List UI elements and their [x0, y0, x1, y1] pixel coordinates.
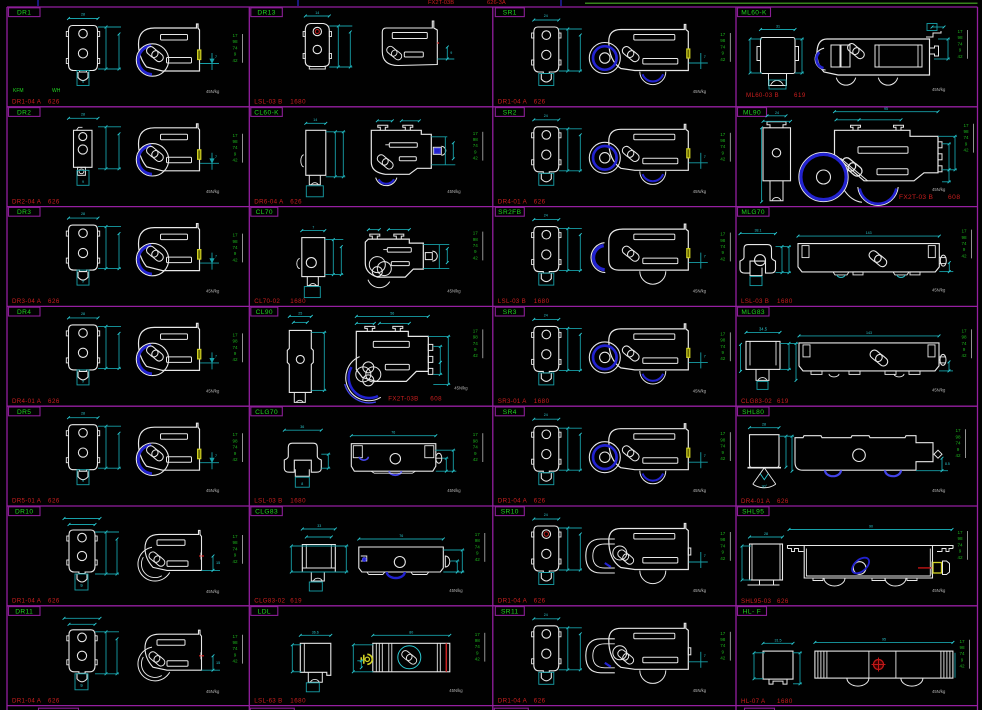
svg-text:28: 28: [81, 112, 85, 116]
svg-text:17: 17: [720, 531, 726, 536]
svg-text:7: 7: [215, 155, 217, 159]
svg-text:45N/kg: 45N/kg: [447, 289, 461, 294]
svg-text:DR1-04 A: DR1-04 A: [12, 697, 42, 704]
svg-text:36: 36: [300, 425, 304, 429]
svg-text:98: 98: [232, 438, 238, 443]
svg-text:SR10: SR10: [501, 509, 519, 516]
svg-text:98: 98: [959, 645, 965, 650]
svg-text:DR1-04 A: DR1-04 A: [498, 697, 528, 704]
svg-text:9: 9: [82, 479, 84, 483]
svg-text:28: 28: [81, 312, 85, 316]
svg-text:98: 98: [720, 637, 726, 642]
svg-text:17: 17: [475, 532, 481, 537]
svg-text:7: 7: [215, 454, 217, 458]
svg-text:98: 98: [963, 129, 969, 134]
svg-text:24: 24: [544, 214, 548, 218]
svg-text:17: 17: [473, 231, 479, 236]
svg-text:42: 42: [955, 453, 961, 458]
svg-text:25: 25: [298, 311, 302, 315]
svg-text:98: 98: [720, 338, 726, 343]
svg-text:17: 17: [720, 631, 726, 636]
svg-text:76: 76: [391, 431, 395, 435]
svg-text:74: 74: [955, 441, 961, 446]
svg-text:1680: 1680: [290, 697, 306, 704]
svg-text:74: 74: [961, 341, 967, 346]
svg-text:9: 9: [234, 451, 237, 456]
svg-text:626: 626: [777, 498, 789, 505]
svg-text:42: 42: [961, 353, 967, 358]
svg-text:74: 74: [475, 644, 481, 649]
svg-text:7: 7: [704, 554, 706, 558]
svg-text:619: 619: [777, 398, 789, 405]
svg-text:56: 56: [390, 311, 394, 315]
svg-text:CL90: CL90: [256, 309, 273, 316]
svg-text:17: 17: [720, 32, 726, 37]
svg-text:FX2T-03 B: FX2T-03 B: [899, 194, 934, 201]
svg-text:42: 42: [961, 253, 967, 258]
svg-text:98: 98: [957, 35, 963, 40]
svg-text:45N/kg: 45N/kg: [693, 588, 707, 593]
svg-text:42: 42: [232, 357, 238, 362]
svg-text:7: 7: [215, 55, 217, 59]
svg-text:24: 24: [544, 114, 548, 118]
svg-text:42: 42: [232, 457, 238, 462]
svg-text:ML60-K: ML60-K: [741, 10, 767, 17]
svg-text:17: 17: [232, 133, 238, 138]
svg-text:17: 17: [963, 123, 969, 128]
svg-text:74: 74: [473, 143, 479, 148]
svg-text:45N/kg: 45N/kg: [206, 388, 220, 393]
svg-text:45N/kg: 45N/kg: [693, 189, 707, 194]
svg-text:45N/kg: 45N/kg: [693, 688, 707, 693]
svg-text:42: 42: [473, 457, 479, 462]
svg-text:42: 42: [720, 556, 726, 561]
svg-text:42: 42: [475, 657, 481, 662]
svg-text:619: 619: [290, 598, 302, 605]
svg-text:42: 42: [963, 148, 969, 153]
svg-text:DR3-04 A: DR3-04 A: [12, 298, 42, 305]
svg-text:9: 9: [82, 80, 84, 84]
svg-text:7: 7: [215, 255, 217, 259]
svg-text:74: 74: [720, 643, 726, 648]
svg-text:7: 7: [215, 354, 217, 358]
svg-text:74: 74: [232, 646, 238, 651]
svg-text:74: 74: [957, 542, 963, 547]
svg-text:SHL95: SHL95: [742, 509, 764, 516]
svg-text:SR3: SR3: [503, 309, 517, 316]
svg-text:45N/kg: 45N/kg: [932, 387, 946, 392]
svg-text:45N/kg: 45N/kg: [206, 589, 220, 594]
svg-text:DR1-04 A: DR1-04 A: [12, 598, 42, 605]
svg-text:9: 9: [722, 250, 725, 255]
svg-text:95: 95: [884, 107, 888, 111]
svg-text:143: 143: [866, 331, 872, 335]
svg-text:SR1: SR1: [503, 10, 517, 17]
svg-text:24: 24: [544, 14, 548, 18]
svg-text:74: 74: [720, 44, 726, 49]
svg-text:626: 626: [290, 198, 302, 205]
svg-text:45N/kg: 45N/kg: [447, 189, 461, 194]
svg-text:CLG83-02: CLG83-02: [254, 598, 285, 605]
svg-text:DR13: DR13: [257, 10, 275, 17]
svg-text:DR4-01 A: DR4-01 A: [741, 498, 771, 505]
svg-text:17: 17: [473, 328, 479, 333]
svg-text:9: 9: [722, 550, 725, 555]
svg-text:42: 42: [720, 57, 726, 62]
svg-text:SR3-01 A: SR3-01 A: [498, 398, 527, 405]
svg-text:1680: 1680: [290, 498, 306, 505]
svg-text:17: 17: [232, 233, 238, 238]
svg-text:98: 98: [232, 339, 238, 344]
svg-text:608: 608: [948, 194, 961, 201]
svg-text:8: 8: [301, 482, 303, 486]
svg-text:45N/kg: 45N/kg: [693, 289, 707, 294]
svg-text:1680: 1680: [777, 298, 793, 305]
svg-text:17: 17: [957, 530, 963, 535]
svg-text:42: 42: [232, 659, 238, 664]
svg-text:74: 74: [959, 651, 965, 656]
svg-text:9: 9: [476, 650, 479, 655]
svg-text:9: 9: [722, 51, 725, 56]
svg-text:42: 42: [959, 664, 965, 669]
svg-text:17: 17: [720, 132, 726, 137]
svg-text:9: 9: [474, 347, 477, 352]
svg-text:MLG83: MLG83: [741, 309, 765, 316]
svg-text:LSL-03 B: LSL-03 B: [254, 99, 282, 106]
svg-text:98: 98: [232, 640, 238, 645]
svg-text:FX2T-03B: FX2T-03B: [428, 0, 454, 6]
svg-text:28: 28: [81, 13, 85, 17]
svg-text:7: 7: [312, 226, 314, 230]
svg-text:45N/kg: 45N/kg: [206, 189, 220, 194]
svg-text:42: 42: [232, 559, 238, 564]
svg-text:626: 626: [48, 598, 60, 605]
svg-text:9: 9: [722, 450, 725, 455]
svg-text:36.6: 36.6: [312, 630, 319, 634]
svg-text:74: 74: [232, 145, 238, 150]
svg-text:28: 28: [764, 532, 768, 536]
svg-text:7: 7: [704, 354, 706, 358]
svg-text:98: 98: [473, 335, 479, 340]
svg-text:45N/kg: 45N/kg: [932, 588, 946, 593]
svg-text:626: 626: [48, 298, 60, 305]
svg-text:626: 626: [48, 398, 60, 405]
svg-text:45N/kg: 45N/kg: [454, 385, 468, 390]
svg-text:98: 98: [232, 39, 238, 44]
svg-text:9: 9: [234, 652, 237, 657]
svg-text:74: 74: [473, 243, 479, 248]
svg-text:98: 98: [475, 638, 481, 643]
svg-text:42: 42: [957, 54, 963, 59]
svg-text:626: 626: [777, 598, 789, 605]
svg-text:17: 17: [959, 639, 965, 644]
svg-text:1680: 1680: [290, 99, 306, 106]
svg-text:LSL-03 B: LSL-03 B: [741, 298, 769, 305]
svg-text:SR11: SR11: [501, 608, 519, 615]
svg-text:31: 31: [776, 25, 780, 29]
svg-text:98: 98: [720, 537, 726, 542]
svg-text:DR5-01 A: DR5-01 A: [12, 498, 42, 505]
svg-text:SR2: SR2: [503, 109, 517, 116]
svg-text:42: 42: [720, 656, 726, 661]
svg-text:9: 9: [474, 149, 477, 154]
svg-text:DR1-04 A: DR1-04 A: [498, 498, 528, 505]
svg-text:1680: 1680: [534, 298, 550, 305]
svg-text:CLG70: CLG70: [255, 409, 278, 416]
svg-text:45N/kg: 45N/kg: [932, 689, 946, 694]
svg-text:42: 42: [720, 356, 726, 361]
svg-text:98: 98: [720, 138, 726, 143]
svg-text:45N/kg: 45N/kg: [449, 688, 463, 693]
svg-text:626-3A: 626-3A: [487, 0, 506, 6]
svg-text:17: 17: [232, 432, 238, 437]
svg-text:LSL-03 B: LSL-03 B: [254, 498, 282, 505]
svg-text:9: 9: [963, 247, 966, 252]
svg-text:74: 74: [232, 345, 238, 350]
svg-text:76: 76: [399, 534, 403, 538]
svg-text:KFM: KFM: [13, 88, 24, 94]
svg-text:14: 14: [313, 118, 317, 122]
svg-text:74: 74: [475, 544, 481, 549]
svg-text:45N/kg: 45N/kg: [206, 289, 220, 294]
svg-text:9: 9: [961, 657, 964, 662]
svg-text:17: 17: [720, 232, 726, 237]
svg-text:ML90: ML90: [743, 109, 761, 116]
svg-text:HL- F: HL- F: [743, 608, 761, 615]
svg-text:45N/kg: 45N/kg: [932, 87, 946, 92]
svg-text:SHL80: SHL80: [742, 409, 764, 416]
svg-text:98: 98: [957, 536, 963, 541]
svg-text:626: 626: [48, 498, 60, 505]
svg-text:DR1: DR1: [17, 10, 31, 17]
svg-text:9: 9: [476, 551, 479, 556]
svg-text:9: 9: [234, 52, 237, 57]
svg-text:98: 98: [720, 437, 726, 442]
svg-text:24: 24: [544, 513, 548, 517]
svg-text:74: 74: [720, 244, 726, 249]
svg-text:45N/kg: 45N/kg: [693, 488, 707, 493]
svg-text:24: 24: [544, 413, 548, 417]
svg-text:608: 608: [430, 395, 442, 402]
svg-text:34.5: 34.5: [759, 326, 768, 331]
svg-text:42: 42: [473, 255, 479, 260]
svg-text:45N/kg: 45N/kg: [206, 488, 220, 493]
svg-text:17: 17: [232, 332, 238, 337]
svg-text:45N/kg: 45N/kg: [447, 488, 461, 493]
svg-text:9: 9: [82, 280, 84, 284]
svg-text:DR4-01 A: DR4-01 A: [498, 198, 528, 205]
svg-text:626: 626: [534, 498, 546, 505]
svg-text:SR2FB: SR2FB: [498, 209, 521, 216]
svg-text:WH: WH: [52, 88, 61, 94]
svg-text:42: 42: [475, 557, 481, 562]
svg-text:626: 626: [48, 697, 60, 704]
svg-text:LSL-03 B: LSL-03 B: [498, 298, 526, 305]
svg-text:CL70-02: CL70-02: [254, 298, 280, 305]
svg-text:74: 74: [232, 245, 238, 250]
svg-text:80: 80: [409, 630, 413, 634]
svg-text:90: 90: [869, 525, 873, 529]
svg-text:9: 9: [959, 549, 962, 554]
svg-text:74: 74: [720, 144, 726, 149]
svg-text:9: 9: [474, 451, 477, 456]
svg-text:7: 7: [704, 55, 706, 59]
svg-text:9: 9: [82, 180, 84, 184]
svg-text:42: 42: [720, 256, 726, 261]
svg-text:9: 9: [722, 350, 725, 355]
svg-text:626: 626: [534, 697, 546, 704]
svg-text:DR10: DR10: [15, 509, 33, 516]
svg-text:DR11: DR11: [15, 608, 33, 615]
svg-text:98: 98: [232, 139, 238, 144]
svg-text:74: 74: [963, 135, 969, 140]
svg-text:DR1-04 A: DR1-04 A: [498, 598, 528, 605]
svg-text:DR5: DR5: [17, 409, 31, 416]
svg-text:74: 74: [720, 344, 726, 349]
svg-text:28: 28: [762, 423, 766, 427]
svg-text:LDL: LDL: [258, 608, 271, 615]
svg-text:42: 42: [232, 257, 238, 262]
svg-text:98: 98: [961, 235, 967, 240]
svg-text:42: 42: [720, 157, 726, 162]
svg-text:74: 74: [720, 543, 726, 548]
svg-text:45N/kg: 45N/kg: [932, 288, 946, 293]
svg-text:9: 9: [234, 151, 237, 156]
svg-text:7: 7: [704, 454, 706, 458]
svg-text:9: 9: [474, 249, 477, 254]
svg-text:FX2T-03B: FX2T-03B: [388, 395, 418, 402]
svg-text:9: 9: [959, 48, 962, 53]
svg-text:HL-07 A: HL-07 A: [741, 698, 766, 705]
svg-text:9: 9: [450, 51, 452, 55]
svg-text:74: 74: [232, 45, 238, 50]
svg-text:17: 17: [232, 33, 238, 38]
svg-text:DR1-04 A: DR1-04 A: [498, 99, 528, 106]
svg-text:626: 626: [48, 99, 60, 106]
svg-text:98: 98: [720, 238, 726, 243]
svg-text:DR2: DR2: [17, 109, 31, 116]
svg-text:90°: 90°: [762, 485, 768, 489]
svg-text:SHL95-03: SHL95-03: [741, 598, 772, 605]
svg-text:45N/kg: 45N/kg: [206, 89, 220, 94]
svg-text:98: 98: [473, 137, 479, 142]
svg-text:98: 98: [232, 540, 238, 545]
svg-text:42: 42: [232, 158, 238, 163]
svg-text:31.5: 31.5: [775, 638, 782, 642]
svg-text:9: 9: [722, 649, 725, 654]
svg-text:CL70: CL70: [256, 209, 273, 216]
svg-text:17: 17: [961, 229, 967, 234]
svg-text:619: 619: [794, 92, 806, 99]
svg-text:DR1-04 A: DR1-04 A: [12, 99, 42, 106]
svg-text:9: 9: [234, 251, 237, 256]
svg-text:98: 98: [473, 237, 479, 242]
svg-text:45N/kg: 45N/kg: [449, 588, 463, 593]
svg-text:74: 74: [473, 445, 479, 450]
svg-text:33: 33: [317, 524, 321, 528]
svg-text:45N/kg: 45N/kg: [693, 388, 707, 393]
svg-text:42: 42: [720, 456, 726, 461]
svg-text:24: 24: [544, 613, 548, 617]
svg-text:1680: 1680: [534, 398, 550, 405]
svg-text:CL60-K: CL60-K: [254, 109, 279, 116]
svg-text:14: 14: [315, 11, 319, 15]
svg-text:42: 42: [473, 156, 479, 161]
svg-text:38.1: 38.1: [755, 229, 762, 233]
svg-text:74: 74: [720, 444, 726, 449]
svg-text:8.5: 8.5: [945, 462, 950, 466]
svg-text:SR4: SR4: [503, 409, 517, 416]
svg-text:DR4: DR4: [17, 309, 31, 316]
svg-text:74: 74: [232, 445, 238, 450]
svg-text:98: 98: [473, 438, 479, 443]
svg-text:15: 15: [216, 561, 220, 565]
svg-text:45N/kg: 45N/kg: [932, 187, 946, 192]
svg-text:9: 9: [234, 553, 237, 558]
svg-text:98: 98: [475, 538, 481, 543]
svg-text:MLG70: MLG70: [741, 209, 765, 216]
svg-text:9: 9: [234, 351, 237, 356]
svg-text:626: 626: [534, 198, 546, 205]
svg-text:74: 74: [473, 341, 479, 346]
svg-text:98: 98: [961, 335, 967, 340]
svg-text:42: 42: [232, 58, 238, 63]
svg-text:9: 9: [82, 379, 84, 383]
svg-text:17: 17: [473, 432, 479, 437]
svg-text:626: 626: [48, 198, 60, 205]
svg-text:626: 626: [534, 598, 546, 605]
svg-text:17: 17: [232, 634, 238, 639]
svg-text:17: 17: [475, 632, 481, 637]
svg-text:42: 42: [957, 555, 963, 560]
svg-text:DR6-04 A: DR6-04 A: [254, 198, 284, 205]
svg-text:17: 17: [473, 131, 479, 136]
svg-text:17: 17: [957, 29, 963, 34]
svg-text:1680: 1680: [290, 298, 306, 305]
svg-text:626: 626: [534, 99, 546, 106]
svg-text:7: 7: [704, 654, 706, 658]
svg-text:9: 9: [965, 141, 968, 146]
svg-text:9: 9: [957, 447, 960, 452]
svg-text:17: 17: [961, 328, 967, 333]
svg-text:74: 74: [961, 241, 967, 246]
svg-text:9: 9: [963, 347, 966, 352]
svg-text:98: 98: [955, 434, 961, 439]
svg-text:17: 17: [955, 428, 961, 433]
svg-text:9: 9: [722, 150, 725, 155]
svg-text:28: 28: [81, 212, 85, 216]
svg-text:CLG83-02: CLG83-02: [741, 398, 772, 405]
svg-text:24: 24: [775, 111, 779, 115]
svg-text:1680: 1680: [777, 698, 793, 705]
svg-text:42: 42: [473, 353, 479, 358]
svg-text:7: 7: [704, 255, 706, 259]
svg-text:LSL-63 B: LSL-63 B: [254, 697, 282, 704]
svg-text:45N/kg: 45N/kg: [932, 488, 946, 493]
svg-text:24: 24: [544, 313, 548, 317]
svg-text:45N/kg: 45N/kg: [693, 89, 707, 94]
svg-text:143: 143: [866, 231, 872, 235]
svg-text:28: 28: [81, 412, 85, 416]
svg-text:98: 98: [232, 239, 238, 244]
svg-text:17: 17: [720, 331, 726, 336]
svg-text:15: 15: [216, 661, 220, 665]
svg-text:CLG83: CLG83: [255, 509, 278, 516]
svg-text:ML60-03 B: ML60-03 B: [746, 92, 779, 99]
svg-text:45N/kg: 45N/kg: [206, 689, 220, 694]
svg-text:DR4-01 A: DR4-01 A: [12, 398, 42, 405]
svg-text:7: 7: [704, 155, 706, 159]
